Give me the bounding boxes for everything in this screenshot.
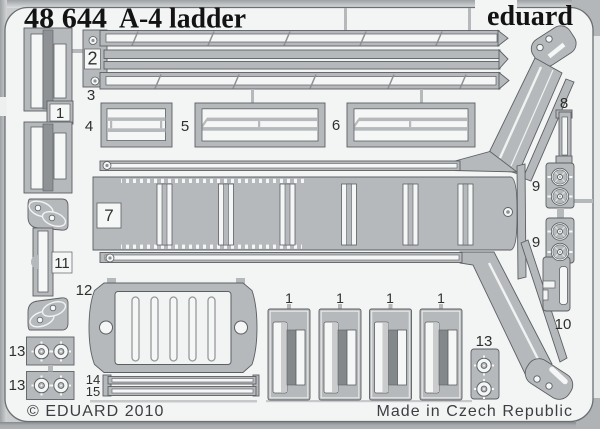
- svg-text:2: 2: [87, 49, 97, 69]
- svg-text:© EDUARD 2010: © EDUARD 2010: [27, 403, 165, 420]
- svg-text:3: 3: [87, 87, 95, 104]
- svg-text:Made in Czech Republic: Made in Czech Republic: [376, 403, 573, 420]
- svg-text:1: 1: [336, 290, 344, 306]
- svg-text:13: 13: [9, 343, 26, 360]
- svg-text:15: 15: [86, 384, 100, 399]
- svg-text:10: 10: [555, 316, 572, 333]
- svg-text:4: 4: [85, 118, 93, 135]
- svg-text:A-4 ladder: A-4 ladder: [119, 4, 246, 35]
- svg-text:1: 1: [56, 105, 64, 122]
- svg-text:9: 9: [532, 178, 540, 195]
- svg-text:1: 1: [386, 290, 394, 306]
- svg-text:13: 13: [476, 333, 493, 350]
- svg-text:5: 5: [181, 118, 189, 135]
- svg-text:11: 11: [54, 255, 70, 272]
- svg-text:7: 7: [104, 206, 113, 225]
- svg-text:12: 12: [76, 282, 93, 299]
- svg-text:6: 6: [332, 117, 340, 134]
- svg-text:1: 1: [285, 290, 293, 306]
- svg-text:8: 8: [560, 95, 568, 112]
- svg-text:eduard: eduard: [487, 0, 573, 32]
- svg-text:13: 13: [9, 377, 26, 394]
- svg-text:9: 9: [532, 234, 540, 251]
- svg-text:1: 1: [437, 290, 445, 306]
- svg-text:48 644: 48 644: [24, 4, 107, 35]
